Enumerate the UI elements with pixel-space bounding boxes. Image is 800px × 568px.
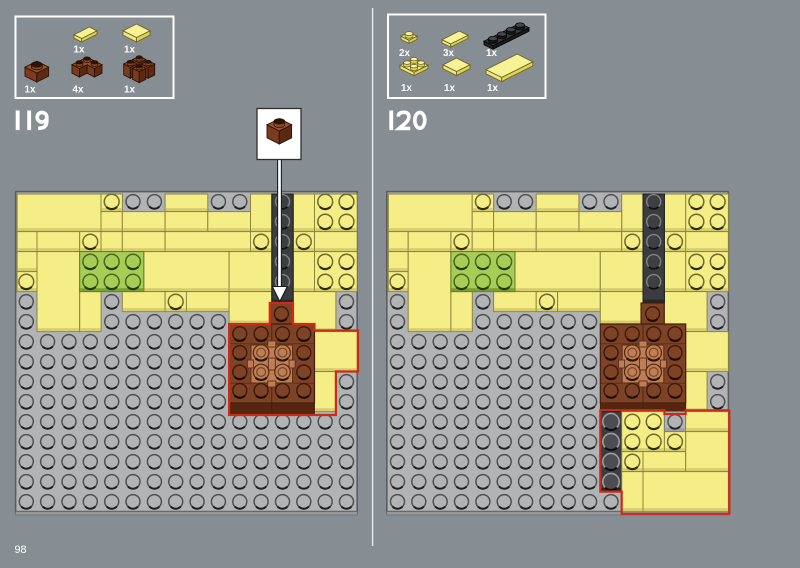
svg-text:1x: 1x (487, 83, 498, 94)
svg-text:1x: 1x (401, 83, 412, 94)
svg-text:3x: 3x (443, 48, 454, 59)
svg-text:1x: 1x (124, 45, 135, 56)
svg-text:1x: 1x (486, 48, 497, 59)
svg-text:1x: 1x (25, 85, 36, 96)
svg-text:1x: 1x (74, 45, 85, 56)
svg-text:1x: 1x (444, 83, 455, 94)
svg-text:2x: 2x (399, 48, 410, 59)
svg-text:98: 98 (15, 544, 27, 556)
svg-text:4x: 4x (73, 85, 84, 96)
svg-text:1x: 1x (124, 85, 135, 96)
